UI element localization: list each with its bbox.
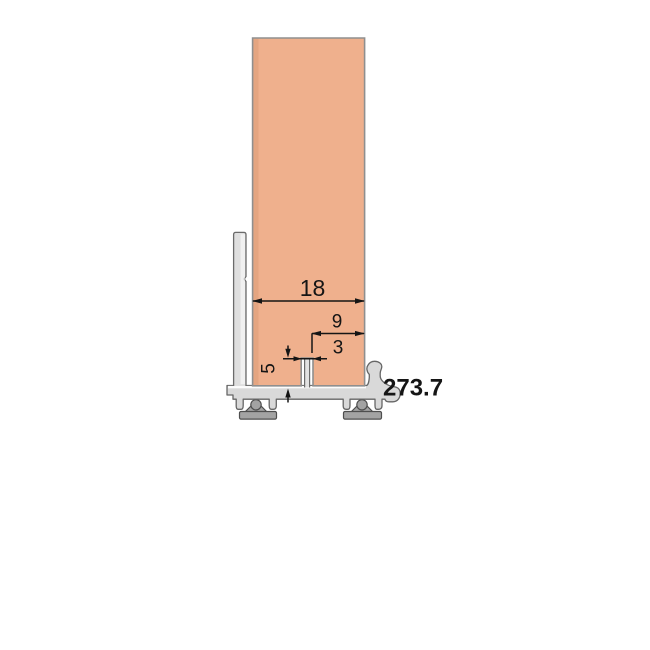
dim-groove-offset-label: 9: [332, 312, 343, 333]
technical-drawing-canvas: 18 9 3 5 273.7: [0, 0, 650, 650]
dim-panel-width-label: 18: [300, 275, 326, 301]
panel-left-shade: [254, 39, 259, 385]
dim-groove-depth-label: 5: [259, 363, 280, 374]
profile-cross-section-drawing: 18 9 3 5 273.7: [0, 0, 650, 650]
dim-groove-width-label: 3: [333, 338, 344, 359]
profile-center-fin: [305, 358, 310, 388]
part-number-label: 273.7: [383, 375, 443, 402]
glide-dome: [357, 400, 367, 410]
flange-highlight: [241, 234, 245, 384]
glide-dome: [251, 400, 261, 410]
glide-base-plate: [240, 412, 277, 420]
glide-base-plate: [344, 412, 382, 420]
